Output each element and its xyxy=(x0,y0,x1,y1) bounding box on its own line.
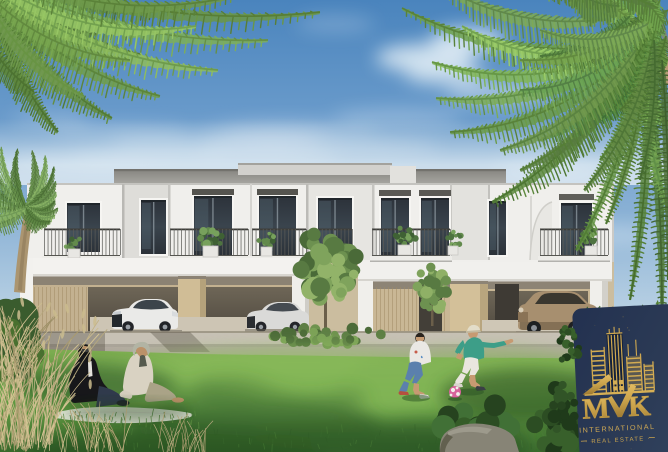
svg-text:M: M xyxy=(581,392,610,425)
